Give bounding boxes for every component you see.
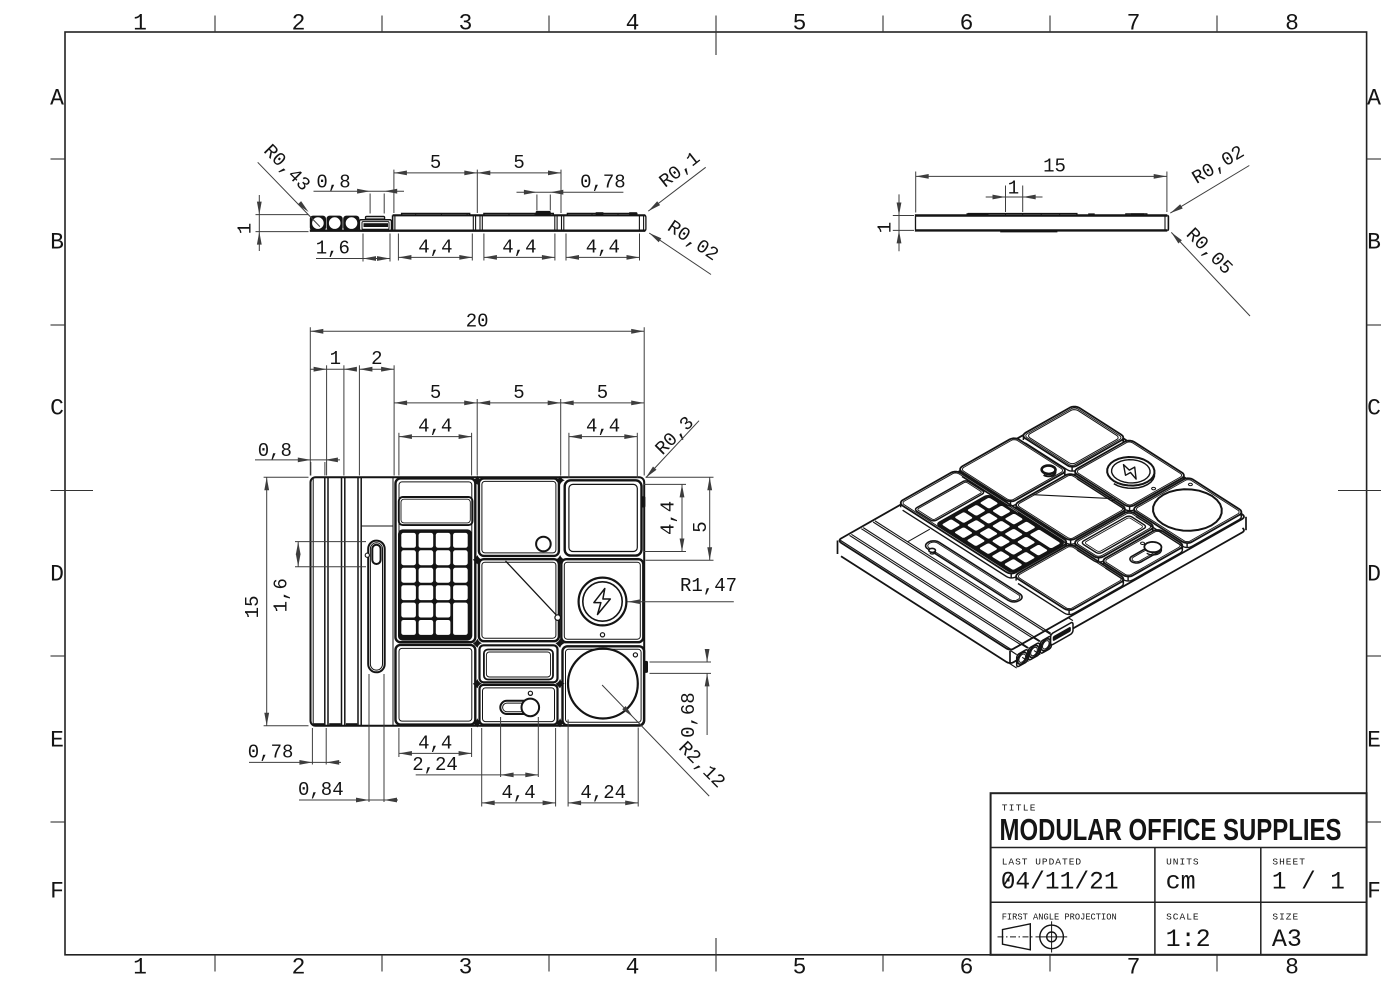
svg-text:4,4: 4,4: [586, 236, 620, 258]
svg-text:15: 15: [1043, 155, 1066, 177]
svg-text:A: A: [50, 86, 64, 112]
svg-text:3: 3: [459, 955, 473, 981]
svg-text:1 / 1: 1 / 1: [1272, 868, 1345, 897]
svg-text:1,6: 1,6: [270, 578, 292, 612]
svg-text:0,84: 0,84: [298, 779, 344, 801]
svg-text:E: E: [50, 728, 64, 754]
svg-text:4,4: 4,4: [658, 501, 680, 535]
svg-text:4,4: 4,4: [586, 416, 620, 438]
svg-text:5: 5: [430, 152, 441, 174]
svg-text:4,4: 4,4: [418, 236, 452, 258]
svg-text:8: 8: [1285, 955, 1299, 981]
svg-text:A: A: [1367, 86, 1381, 112]
svg-text:2: 2: [292, 11, 306, 37]
svg-text:4,4: 4,4: [418, 416, 452, 438]
svg-text:SIZE: SIZE: [1272, 912, 1299, 923]
svg-text:A3: A3: [1272, 925, 1302, 954]
svg-text:R1,47: R1,47: [680, 575, 737, 597]
svg-text:1: 1: [133, 955, 147, 981]
svg-text:1: 1: [133, 11, 147, 37]
svg-text:0,68: 0,68: [678, 692, 700, 738]
svg-text:20: 20: [466, 310, 489, 332]
svg-text:5: 5: [793, 955, 807, 981]
svg-text:UNITS: UNITS: [1166, 857, 1200, 868]
svg-text:8: 8: [1285, 11, 1299, 37]
svg-text:1: 1: [1008, 178, 1019, 200]
svg-text:B: B: [1367, 230, 1381, 256]
svg-text:LAST UPDATED: LAST UPDATED: [1002, 857, 1082, 868]
svg-text:4,4: 4,4: [502, 236, 536, 258]
svg-text:4: 4: [626, 955, 640, 981]
svg-text:0,78: 0,78: [580, 172, 626, 194]
svg-text:2: 2: [292, 955, 306, 981]
svg-text:1:2: 1:2: [1166, 925, 1211, 954]
svg-text:C: C: [50, 396, 64, 422]
svg-text:E: E: [1367, 728, 1381, 754]
svg-text:04/11/21: 04/11/21: [1001, 868, 1119, 897]
svg-text:B: B: [50, 230, 64, 256]
svg-text:6: 6: [960, 11, 974, 37]
svg-text:D: D: [50, 562, 64, 588]
svg-text:4,24: 4,24: [580, 782, 626, 804]
svg-text:SCALE: SCALE: [1166, 912, 1200, 923]
svg-text:0,78: 0,78: [248, 742, 294, 764]
svg-text:1: 1: [330, 348, 341, 370]
svg-text:5: 5: [793, 11, 807, 37]
svg-text:F: F: [50, 879, 64, 905]
svg-text:1: 1: [235, 223, 257, 234]
svg-text:SHEET: SHEET: [1272, 857, 1306, 868]
svg-text:0,8: 0,8: [316, 172, 350, 194]
svg-text:2: 2: [371, 348, 382, 370]
svg-text:2,24: 2,24: [412, 754, 458, 776]
svg-text:MODULAR OFFICE SUPPLIES: MODULAR OFFICE SUPPLIES: [1000, 812, 1342, 847]
svg-text:C: C: [1367, 396, 1381, 422]
svg-text:F: F: [1367, 879, 1381, 905]
svg-text:4,4: 4,4: [418, 732, 452, 754]
svg-text:4,4: 4,4: [501, 782, 535, 804]
svg-text:0,8: 0,8: [258, 440, 292, 462]
svg-text:4: 4: [626, 11, 640, 37]
svg-text:5: 5: [513, 152, 524, 174]
svg-text:D: D: [1367, 562, 1381, 588]
svg-text:5: 5: [690, 521, 712, 532]
svg-text:6: 6: [960, 955, 974, 981]
svg-text:5: 5: [430, 382, 441, 404]
svg-text:15: 15: [242, 595, 264, 618]
svg-text:1,6: 1,6: [316, 238, 350, 260]
svg-text:7: 7: [1127, 955, 1141, 981]
svg-text:cm: cm: [1166, 868, 1196, 897]
svg-text:7: 7: [1127, 11, 1141, 37]
svg-text:3: 3: [459, 11, 473, 37]
svg-text:1: 1: [874, 222, 896, 233]
svg-text:5: 5: [597, 382, 608, 404]
svg-text:FIRST ANGLE PROJECTION: FIRST ANGLE PROJECTION: [1002, 912, 1117, 923]
svg-text:5: 5: [513, 382, 524, 404]
